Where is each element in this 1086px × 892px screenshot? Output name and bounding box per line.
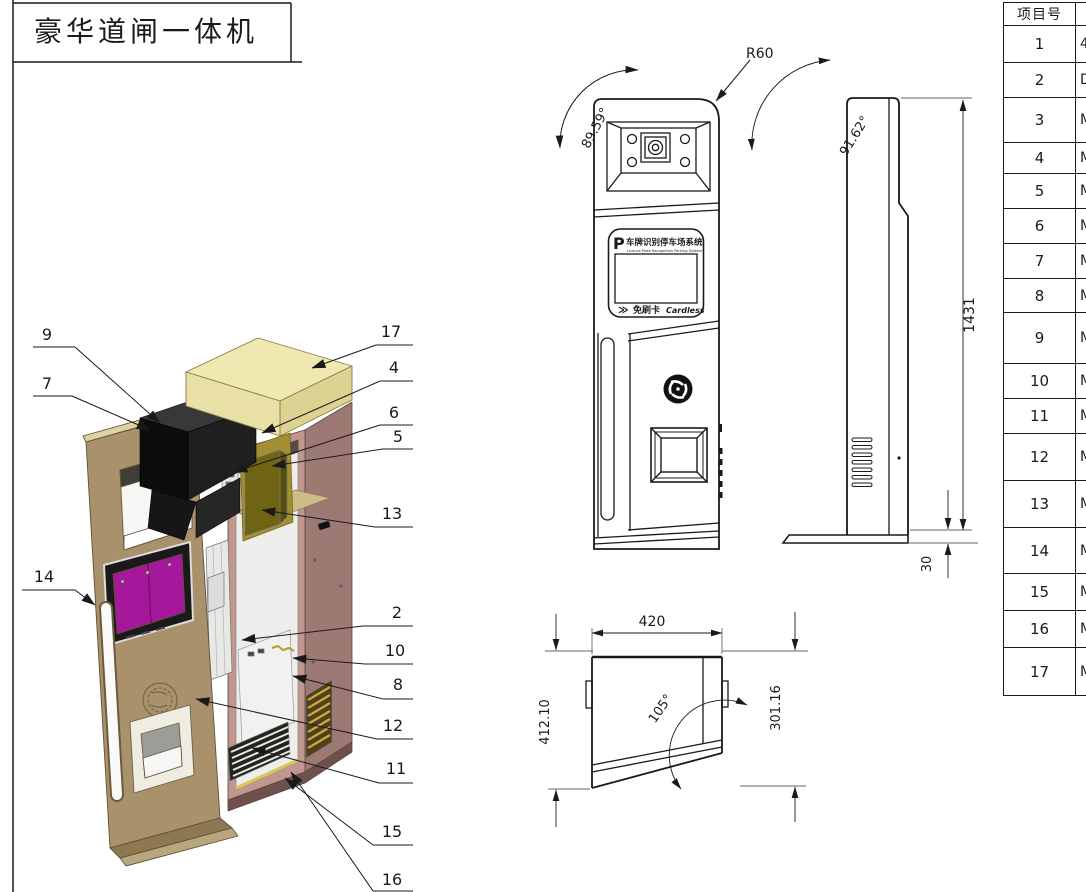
right-hinge-tab [722,681,728,707]
table-row: 17M [1004,648,1086,696]
item-part: D [1076,63,1086,97]
item-no: 17 [1004,648,1076,695]
item-no: 13 [1004,481,1076,527]
item-part: 4 [1076,26,1086,62]
cardless-en: Cardless [666,306,705,315]
callout-8: 8 [393,675,403,694]
callout-11: 11 [386,759,406,778]
table-row: 9M [1004,313,1086,364]
front-camera-panel [607,122,710,191]
side-view-dimensions [752,60,978,578]
table-row: 3M [1004,98,1086,143]
item-part: M [1076,434,1086,480]
item-part: M [1076,244,1086,278]
cardless-arrows: ≫ [618,305,628,316]
item-no: 7 [1004,244,1076,278]
item-no: 14 [1004,528,1076,573]
item-no: 12 [1004,434,1076,480]
item-no: 1 [1004,26,1076,62]
table-row: 8M [1004,279,1086,313]
item-no: 4 [1004,143,1076,173]
callout-6: 6 [389,403,399,422]
col-header-item-no: 项目号 [1004,3,1076,25]
item-part: M [1076,528,1086,573]
front-led-strip [601,338,614,520]
table-row: 12M [1004,434,1086,481]
callout-5: 5 [393,427,403,446]
item-part: M [1076,399,1086,433]
callout-13: 13 [382,504,402,523]
item-no: 9 [1004,313,1076,363]
table-row: 5M [1004,174,1086,209]
item-no: 2 [1004,63,1076,97]
side-louvers [852,438,872,487]
table-row: 14 [1004,26,1086,63]
side-view [783,98,908,543]
item-no: 10 [1004,364,1076,398]
dim-r60: R60 [746,46,774,62]
callout-12: 12 [383,716,403,735]
dim-height-1431: 1431 [962,297,978,333]
front-view-labels: P 车牌识别停车场系统 Licence Plate Recognition Pa… [613,234,705,316]
dim-base-30: 30 [920,556,935,573]
item-part: M [1076,279,1086,312]
table-row: 11M [1004,399,1086,434]
dim-width-420: 420 [639,614,666,630]
item-no: 5 [1004,174,1076,208]
table-row: 2D [1004,63,1086,98]
drawing-canvas: 9 7 14 17 4 6 5 13 2 10 8 12 11 15 16 [0,0,1086,892]
drawing-title: 豪华道闸一体机 [34,10,284,50]
table-row: 13M [1004,481,1086,528]
callout-17: 17 [381,322,401,341]
parts-table: 项目号 14 2D 3M 4M 5M 6M 7M 8M 9M 10M 11M 1… [1003,2,1086,696]
card-reader-window [651,428,707,482]
callout-14: 14 [34,567,54,586]
table-row: 6M [1004,209,1086,244]
cardless-cn: 免刷卡 [633,304,660,316]
item-no: 8 [1004,279,1076,312]
brand-en-text: Licence Plate Recognition Parking System [627,249,703,253]
table-row: 16M [1004,611,1086,648]
item-no: 3 [1004,98,1076,142]
item-part: M [1076,574,1086,610]
item-part: M [1076,209,1086,243]
item-part: M [1076,143,1086,173]
item-no: 11 [1004,399,1076,433]
dim-front-depth-301: 301.16 [769,685,784,731]
item-part: M [1076,481,1086,527]
item-no: 16 [1004,611,1076,647]
callout-2: 2 [392,603,402,622]
callout-9: 9 [42,325,52,344]
front-fan-icon [664,375,693,404]
brand-cn-text: 车牌识别停车场系统 [626,237,703,248]
callout-15: 15 [382,822,402,841]
dim-angle-105: 105° [646,692,676,726]
callout-7: 7 [42,374,52,393]
dim-angle-side: 91.62° [837,114,873,159]
col-header-part [1076,3,1086,25]
isometric-view: 9 7 14 17 4 6 5 13 2 10 8 12 11 15 16 [22,322,413,891]
table-row: 7M [1004,244,1086,279]
camera-lens [649,141,663,155]
brand-p-logo: P [613,234,625,253]
item-part: M [1076,364,1086,398]
item-part: M [1076,313,1086,363]
dim-depth-412: 412.10 [538,699,553,745]
item-no: 15 [1004,574,1076,610]
dim-angle-front: 89.59° [579,106,613,152]
drawing-sheet: 9 7 14 17 4 6 5 13 2 10 8 12 11 15 16 [0,0,1086,892]
item-no: 6 [1004,209,1076,243]
callout-4: 4 [389,358,399,377]
callout-10: 10 [385,641,405,660]
front-view [594,99,723,549]
item-part: M [1076,611,1086,647]
item-part: M [1076,98,1086,142]
table-row: 4M [1004,143,1086,174]
table-row: 15M [1004,574,1086,611]
table-row: 14M [1004,528,1086,574]
parts-table-header: 项目号 [1004,3,1086,26]
relay-box-2 [208,572,224,612]
table-row: 10M [1004,364,1086,399]
item-part: M [1076,648,1086,695]
item-part: M [1076,174,1086,208]
callout-16: 16 [382,870,402,889]
